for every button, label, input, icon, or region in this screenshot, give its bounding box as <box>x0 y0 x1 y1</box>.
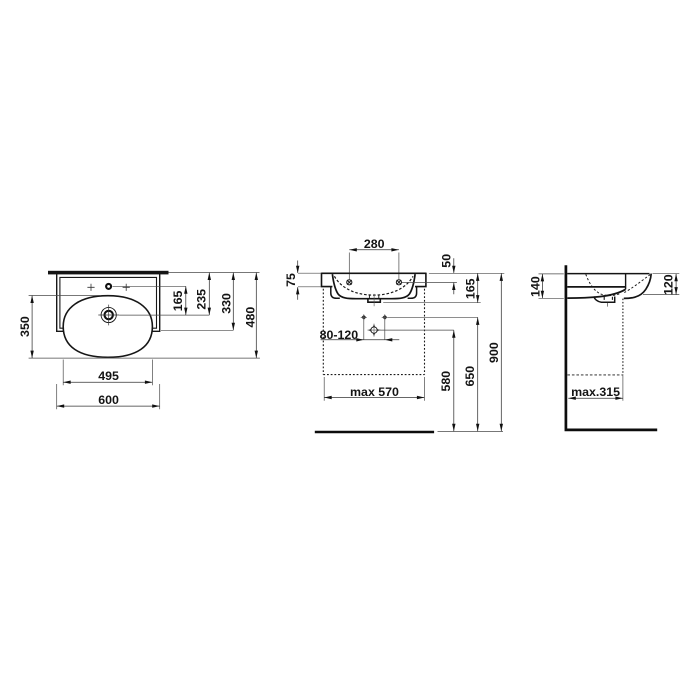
svg-text:max 570: max 570 <box>350 385 399 399</box>
svg-text:max.315: max.315 <box>571 385 620 399</box>
svg-text:495: 495 <box>98 369 119 383</box>
svg-text:75: 75 <box>284 273 298 287</box>
svg-text:165: 165 <box>464 278 478 299</box>
svg-text:600: 600 <box>98 393 119 407</box>
svg-text:140: 140 <box>528 276 542 297</box>
svg-text:580: 580 <box>439 371 453 392</box>
svg-text:480: 480 <box>243 307 257 328</box>
svg-text:120: 120 <box>662 274 676 295</box>
svg-text:235: 235 <box>195 289 209 310</box>
svg-text:50: 50 <box>440 254 454 268</box>
svg-text:165: 165 <box>171 290 185 311</box>
svg-text:80-120: 80-120 <box>320 328 359 342</box>
svg-text:350: 350 <box>18 316 32 337</box>
svg-text:330: 330 <box>220 293 234 314</box>
svg-text:280: 280 <box>364 237 385 251</box>
svg-text:900: 900 <box>487 342 501 363</box>
svg-text:650: 650 <box>463 366 477 387</box>
